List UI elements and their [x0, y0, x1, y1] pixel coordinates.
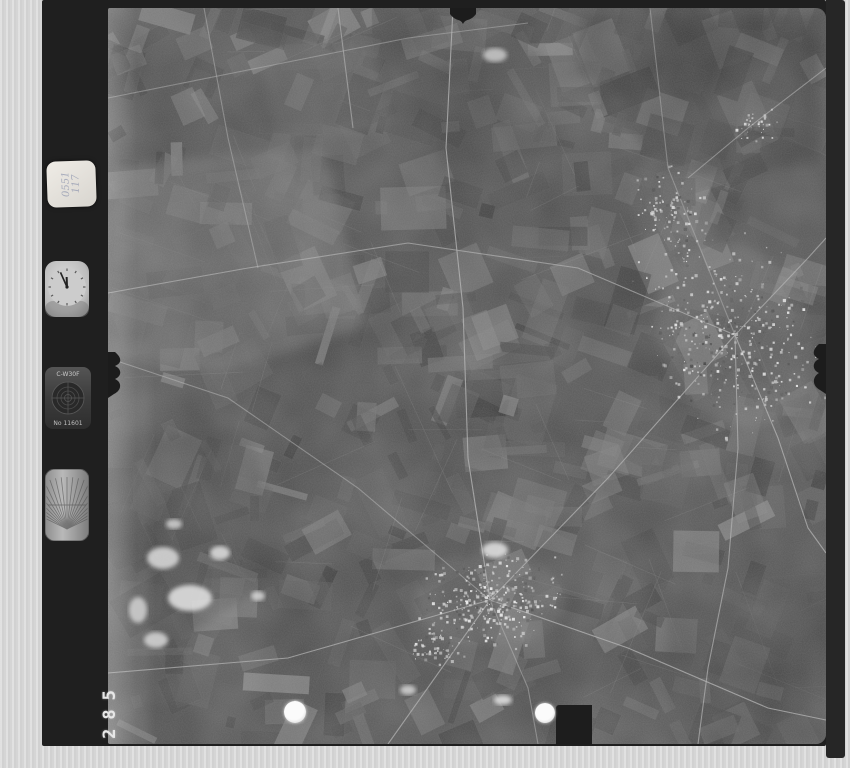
aerial-photograph — [108, 8, 826, 744]
control-point-dot-left — [284, 701, 306, 723]
clock-center-pin — [65, 285, 68, 288]
bottom-fiducial-tab — [556, 705, 592, 745]
film-grain-texture — [108, 8, 826, 744]
scan-background: 0551 117 C-W30F No 11601 — [0, 0, 850, 768]
film-id-label: 0551 117 — [46, 160, 97, 208]
plate-bottom-text: No 11601 — [53, 420, 82, 427]
label-handwriting: 0551 117 — [61, 171, 82, 197]
clock-instrument — [45, 261, 89, 320]
control-point-dot-right — [535, 703, 555, 723]
aerial-photo-canvas — [108, 8, 826, 744]
right-film-strip — [826, 0, 845, 758]
right-fiducial-mark — [811, 344, 826, 394]
top-fiducial-mark — [450, 8, 476, 26]
data-plate-instrument: C-W30F No 11601 — [45, 367, 91, 429]
frame-number: 285 — [97, 678, 123, 742]
left-fiducial-mark — [108, 352, 123, 398]
level-gauge-instrument — [45, 469, 89, 541]
plate-top-text: C-W30F — [56, 371, 80, 378]
label-line2: 117 — [70, 174, 82, 193]
